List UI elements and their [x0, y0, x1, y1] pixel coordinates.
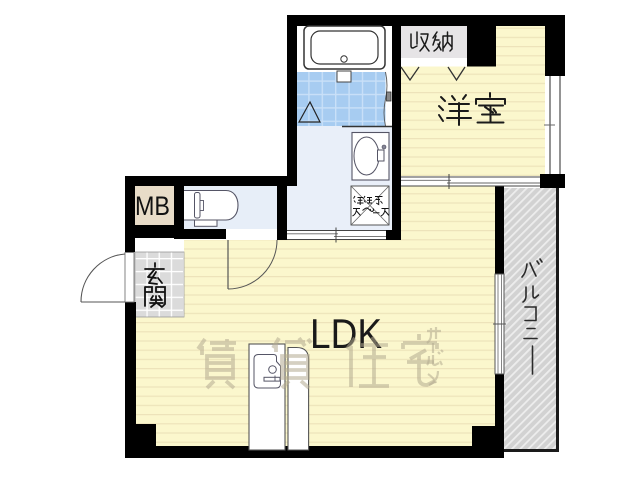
svg-text:MB: MB	[135, 191, 170, 221]
svg-text:LDK: LDK	[310, 310, 382, 357]
